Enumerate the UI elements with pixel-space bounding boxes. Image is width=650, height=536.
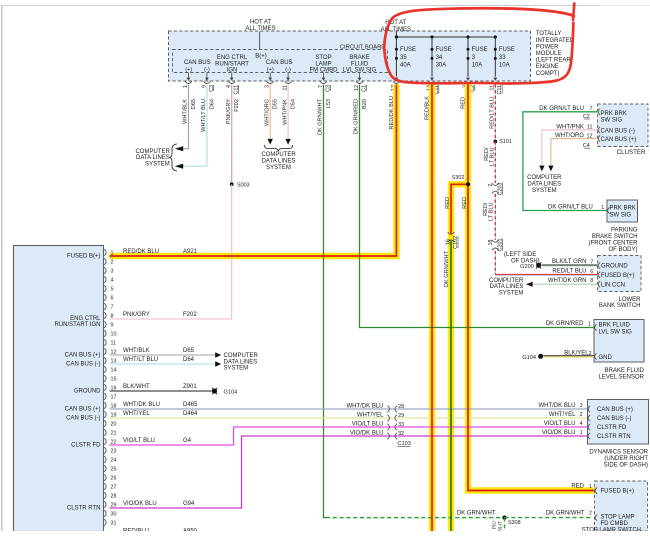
svg-text:G104: G104 xyxy=(522,355,536,361)
svg-text:34: 34 xyxy=(436,55,443,61)
svg-text:(+): (+) xyxy=(267,67,274,73)
svg-text:8: 8 xyxy=(590,278,593,284)
svg-text:STOP LAMP: STOP LAMP xyxy=(601,515,635,521)
svg-text:20: 20 xyxy=(111,422,117,428)
svg-text:DATA LINES: DATA LINES xyxy=(136,155,170,161)
svg-text:RED: RED xyxy=(462,197,468,209)
svg-text:FUSE: FUSE xyxy=(499,47,515,53)
svg-text:WHT/YEL: WHT/YEL xyxy=(123,411,150,417)
svg-text:SIDE OF DASH): SIDE OF DASH) xyxy=(604,463,648,469)
svg-text:18: 18 xyxy=(488,240,494,246)
svg-text:1: 1 xyxy=(589,484,592,490)
svg-text:A921: A921 xyxy=(183,249,198,255)
svg-text:11: 11 xyxy=(111,341,117,347)
svg-text:VIO/LT BLU: VIO/LT BLU xyxy=(544,421,576,427)
svg-text:DATA LINES: DATA LINES xyxy=(527,182,561,188)
svg-text:WHT/BLK: WHT/BLK xyxy=(123,348,150,354)
svg-text:D465: D465 xyxy=(183,402,198,408)
svg-text:1: 1 xyxy=(588,322,591,328)
svg-text:D64: D64 xyxy=(183,357,195,363)
svg-text:(FRONT CENTER: (FRONT CENTER xyxy=(589,241,639,247)
svg-text:(UNDER RIGHT: (UNDER RIGHT xyxy=(604,456,648,462)
svg-text:ENG CTRL: ENG CTRL xyxy=(70,316,101,322)
svg-text:PNK/GRY: PNK/GRY xyxy=(226,99,232,124)
svg-text:COMPUTER: COMPUTER xyxy=(261,152,296,158)
svg-text:GND: GND xyxy=(599,355,613,361)
svg-text:WHT/DK BLU: WHT/DK BLU xyxy=(538,403,575,409)
svg-text:33: 33 xyxy=(499,55,506,61)
svg-text:CAN BUS: CAN BUS xyxy=(266,60,293,66)
svg-text:BLK/YEL: BLK/YEL xyxy=(564,351,589,357)
svg-text:COMPUTER: COMPUTER xyxy=(224,353,259,359)
svg-text:17: 17 xyxy=(111,395,117,401)
svg-text:BRAKE SWITCH: BRAKE SWITCH xyxy=(592,234,638,240)
svg-text:Z901: Z901 xyxy=(183,384,197,390)
svg-text:8: 8 xyxy=(111,314,114,320)
svg-text:BLK/LT GRN: BLK/LT GRN xyxy=(552,259,586,265)
svg-text:DK GRN/WHT: DK GRN/WHT xyxy=(444,250,450,287)
svg-text:DK GRN/WHT: DK GRN/WHT xyxy=(546,510,585,516)
svg-text:G94: G94 xyxy=(183,501,195,507)
svg-text:L53: L53 xyxy=(326,99,332,108)
svg-text:28: 28 xyxy=(111,494,117,500)
svg-text:WHT/ORG: WHT/ORG xyxy=(555,133,584,139)
svg-text:SYSTEM: SYSTEM xyxy=(266,165,291,171)
svg-text:WHT/PNK: WHT/PNK xyxy=(556,124,584,130)
svg-text:29: 29 xyxy=(111,503,117,509)
svg-text:BRK FLUID: BRK FLUID xyxy=(599,323,631,329)
svg-text:BANK SWITCH: BANK SWITCH xyxy=(599,303,641,309)
svg-text:DK GRN/LT BLU: DK GRN/LT BLU xyxy=(548,205,593,211)
svg-text:30A: 30A xyxy=(436,62,447,68)
svg-text:WHT/LT BLU: WHT/LT BLU xyxy=(123,357,158,363)
svg-text:32: 32 xyxy=(398,431,404,437)
svg-text:FUSE: FUSE xyxy=(472,47,488,53)
svg-text:SYSTEM: SYSTEM xyxy=(499,290,524,296)
svg-text:GROUND: GROUND xyxy=(601,264,628,270)
svg-text:PARKING: PARKING xyxy=(611,228,638,234)
svg-text:GROUND: GROUND xyxy=(74,388,101,394)
svg-text:STOP LAMP SWITCH: STOP LAMP SWITCH xyxy=(582,527,641,531)
svg-text:CAN BUS (+): CAN BUS (+) xyxy=(601,137,637,143)
svg-text:CLUSTER: CLUSTER xyxy=(617,149,646,156)
svg-text:31: 31 xyxy=(111,521,117,527)
svg-text:5: 5 xyxy=(111,287,114,293)
svg-text:DK GRN/RED: DK GRN/RED xyxy=(354,99,360,134)
svg-text:4: 4 xyxy=(580,421,583,427)
svg-text:19: 19 xyxy=(111,413,117,419)
svg-text:CAN BUS (+): CAN BUS (+) xyxy=(65,406,101,412)
svg-text:CLSTR RTN: CLSTR RTN xyxy=(597,434,631,440)
svg-text:7: 7 xyxy=(590,106,593,112)
svg-text:WHT/YEL: WHT/YEL xyxy=(357,412,384,418)
svg-text:CAN BUS (-): CAN BUS (-) xyxy=(66,361,100,367)
svg-text:COMPUTER: COMPUTER xyxy=(489,278,524,284)
svg-text:25: 25 xyxy=(111,467,117,473)
svg-text:SW SIG: SW SIG xyxy=(601,118,623,124)
svg-text:10: 10 xyxy=(111,332,117,338)
svg-text:COMPT): COMPT) xyxy=(536,71,560,77)
svg-text:10A: 10A xyxy=(472,62,483,68)
svg-text:28: 28 xyxy=(398,404,404,410)
svg-text:WHT/DK GRN: WHT/DK GRN xyxy=(548,278,587,284)
svg-text:WHT/DK BLU: WHT/DK BLU xyxy=(123,402,160,408)
svg-text:SYSTEM: SYSTEM xyxy=(145,162,170,168)
svg-text:TOTALLY: TOTALLY xyxy=(536,31,562,37)
svg-text:FUSED B(+): FUSED B(+) xyxy=(601,489,635,495)
svg-text:PK/: PK/ xyxy=(492,520,498,529)
svg-text:RED: RED xyxy=(445,197,451,209)
svg-text:D64: D64 xyxy=(209,99,215,109)
svg-text:4: 4 xyxy=(111,278,114,284)
svg-text:3: 3 xyxy=(580,403,583,409)
svg-text:S302: S302 xyxy=(452,175,465,181)
svg-text:WHT/ORG: WHT/ORG xyxy=(264,99,270,126)
svg-text:WHT: WHT xyxy=(498,520,504,531)
svg-text:FLUID: FLUID xyxy=(351,61,369,67)
svg-text:26: 26 xyxy=(111,476,117,482)
svg-text:LOWER: LOWER xyxy=(618,297,641,303)
svg-text:LAMP: LAMP xyxy=(315,61,331,67)
svg-text:D65: D65 xyxy=(191,99,197,109)
svg-text:FUSED B(+): FUSED B(+) xyxy=(601,273,635,279)
svg-text:(LEFT SIDE: (LEFT SIDE xyxy=(504,252,536,258)
svg-text:POWER: POWER xyxy=(536,44,559,50)
svg-text:(+): (+) xyxy=(185,67,192,73)
svg-text:35: 35 xyxy=(400,55,407,61)
svg-text:COMPUTER: COMPUTER xyxy=(527,175,562,181)
svg-text:S003: S003 xyxy=(237,183,250,189)
svg-text:S101: S101 xyxy=(499,139,512,145)
svg-text:G104: G104 xyxy=(224,389,238,395)
svg-text:DK GRN/WHT: DK GRN/WHT xyxy=(318,98,324,135)
svg-text:LVL SW SIG: LVL SW SIG xyxy=(599,329,633,335)
svg-text:21: 21 xyxy=(111,431,117,437)
svg-text:7: 7 xyxy=(590,259,593,265)
svg-text:INTEGRATED: INTEGRATED xyxy=(536,38,575,44)
svg-text:FUSE: FUSE xyxy=(436,47,452,53)
svg-text:9: 9 xyxy=(111,323,114,329)
svg-text:7: 7 xyxy=(111,305,114,311)
svg-text:OF BODY): OF BODY) xyxy=(608,247,637,253)
svg-text:DATA LINES: DATA LINES xyxy=(224,359,258,365)
svg-text:G4: G4 xyxy=(183,438,192,444)
svg-text:LT BLU: LT BLU xyxy=(489,148,495,166)
svg-text:WHT/BLK: WHT/BLK xyxy=(183,99,189,124)
svg-text:40A: 40A xyxy=(400,62,411,68)
svg-text:18: 18 xyxy=(111,404,117,410)
svg-text:(LEFT REAR: (LEFT REAR xyxy=(536,58,572,64)
svg-text:2: 2 xyxy=(111,260,114,266)
svg-text:CIRCUIT BOARD: CIRCUIT BOARD xyxy=(340,45,386,51)
svg-text:12: 12 xyxy=(587,133,593,139)
svg-text:DK GRN/WHT: DK GRN/WHT xyxy=(457,510,496,516)
svg-text:14: 14 xyxy=(111,368,117,374)
svg-text:HOT AT: HOT AT xyxy=(250,19,271,25)
svg-text:PRK BRK: PRK BRK xyxy=(610,205,636,211)
svg-text:VIO/LT BLU: VIO/LT BLU xyxy=(352,421,384,427)
svg-text:WHT/LT BLU: WHT/LT BLU xyxy=(201,99,207,132)
svg-text:CAN BUS: CAN BUS xyxy=(184,60,211,66)
svg-text:F202: F202 xyxy=(183,312,197,318)
svg-text:RED/DK BLU: RED/DK BLU xyxy=(123,249,159,255)
svg-text:WHT/DK BLU: WHT/DK BLU xyxy=(346,403,383,409)
svg-text:24: 24 xyxy=(111,458,117,464)
svg-text:2: 2 xyxy=(589,351,592,357)
svg-text:LEVEL SENSOR: LEVEL SENSOR xyxy=(599,374,645,380)
svg-text:D464: D464 xyxy=(183,411,198,417)
svg-text:29: 29 xyxy=(398,413,404,419)
svg-text:1: 1 xyxy=(111,251,114,257)
svg-text:22: 22 xyxy=(111,440,117,446)
svg-text:VIO/DK BLU: VIO/DK BLU xyxy=(123,501,157,507)
svg-text:D55: D55 xyxy=(273,99,279,109)
svg-text:1: 1 xyxy=(601,205,604,211)
svg-text:(-): (-) xyxy=(285,67,291,73)
svg-text:30: 30 xyxy=(111,512,117,518)
svg-text:BRAKE: BRAKE xyxy=(349,55,369,61)
svg-text:CAN BUS (-): CAN BUS (-) xyxy=(597,416,631,422)
svg-text:COMPUTER: COMPUTER xyxy=(135,149,170,155)
svg-text:RUN/START IGN: RUN/START IGN xyxy=(54,322,100,328)
svg-text:F202: F202 xyxy=(234,99,240,112)
svg-text:FD CMBD: FD CMBD xyxy=(601,521,629,527)
svg-text:11: 11 xyxy=(587,125,593,131)
svg-text:RED: RED xyxy=(571,484,584,490)
svg-text:DK GRN/RED: DK GRN/RED xyxy=(546,321,584,327)
svg-text:VIO/DK BLU: VIO/DK BLU xyxy=(542,430,576,436)
svg-text:CLSTR RTN: CLSTR RTN xyxy=(67,505,101,511)
svg-text:FUSE: FUSE xyxy=(400,47,416,53)
svg-text:2: 2 xyxy=(580,412,583,418)
svg-text:27: 27 xyxy=(111,485,117,491)
svg-text:LIN CCN: LIN CCN xyxy=(601,283,625,289)
svg-text:6: 6 xyxy=(590,269,593,275)
svg-text:D54: D54 xyxy=(291,99,297,109)
svg-text:SYSTEM: SYSTEM xyxy=(532,188,557,194)
svg-text:SW SIG: SW SIG xyxy=(610,213,632,219)
svg-text:16: 16 xyxy=(445,239,451,245)
svg-text:CAN BUS (-): CAN BUS (-) xyxy=(66,415,100,421)
svg-text:RED/LT BLU: RED/LT BLU xyxy=(552,269,586,275)
svg-text:RED/LT BLU: RED/LT BLU xyxy=(490,97,496,129)
svg-text:PRK BRK: PRK BRK xyxy=(601,111,627,117)
svg-text:33: 33 xyxy=(398,422,404,428)
svg-text:DK GRN/LT BLU: DK GRN/LT BLU xyxy=(539,106,584,112)
svg-text:23: 23 xyxy=(111,449,117,455)
svg-text:SYSTEM: SYSTEM xyxy=(224,366,249,372)
svg-text:S308: S308 xyxy=(508,520,521,526)
svg-text:PNK/GRY: PNK/GRY xyxy=(123,312,150,318)
svg-text:DYNAMICS SENSOR: DYNAMICS SENSOR xyxy=(589,449,648,455)
svg-text:10A: 10A xyxy=(499,62,510,68)
svg-text:DATA LINES: DATA LINES xyxy=(490,284,524,290)
svg-text:2: 2 xyxy=(589,510,592,516)
svg-text:(-): (-) xyxy=(204,67,210,73)
svg-text:WHT/PNK: WHT/PNK xyxy=(282,99,288,125)
svg-text:CAN BUS (+): CAN BUS (+) xyxy=(597,407,633,413)
svg-text:CLSTR FD: CLSTR FD xyxy=(597,425,627,431)
svg-text:15: 15 xyxy=(111,377,117,383)
svg-text:RUN/START: RUN/START xyxy=(215,61,249,67)
svg-text:B20: B20 xyxy=(362,99,368,109)
svg-text:VIO/DK BLU: VIO/DK BLU xyxy=(350,430,384,436)
svg-text:D65: D65 xyxy=(183,348,195,354)
svg-text:ALL TIMES: ALL TIMES xyxy=(245,26,275,32)
svg-text:ENGINE: ENGINE xyxy=(536,64,559,70)
svg-text:1: 1 xyxy=(580,430,583,436)
svg-text:BLK/WHT: BLK/WHT xyxy=(123,384,150,390)
svg-text:LT BLU: LT BLU xyxy=(488,203,494,221)
svg-text:CAN BUS (-): CAN BUS (-) xyxy=(601,128,635,134)
svg-text:CAN BUS (+): CAN BUS (+) xyxy=(65,352,101,358)
svg-text:DATA LINES: DATA LINES xyxy=(262,159,296,165)
svg-text:STOP: STOP xyxy=(315,55,331,61)
svg-text:WHT/YEL: WHT/YEL xyxy=(549,412,576,418)
svg-text:6: 6 xyxy=(111,296,114,302)
svg-text:G200: G200 xyxy=(520,264,534,270)
svg-text:BRAKE FLUID: BRAKE FLUID xyxy=(605,368,645,374)
svg-text:3: 3 xyxy=(111,269,114,275)
svg-text:2: 2 xyxy=(488,184,494,187)
svg-text:MODULE: MODULE xyxy=(536,51,562,57)
svg-text:ENG CTRL: ENG CTRL xyxy=(217,55,248,61)
svg-text:FUSED B(+): FUSED B(+) xyxy=(67,254,101,260)
svg-text:CLSTR FD: CLSTR FD xyxy=(71,442,101,448)
svg-text:B(+): B(+) xyxy=(255,54,267,60)
svg-text:VIO/LT BLU: VIO/LT BLU xyxy=(123,438,155,444)
